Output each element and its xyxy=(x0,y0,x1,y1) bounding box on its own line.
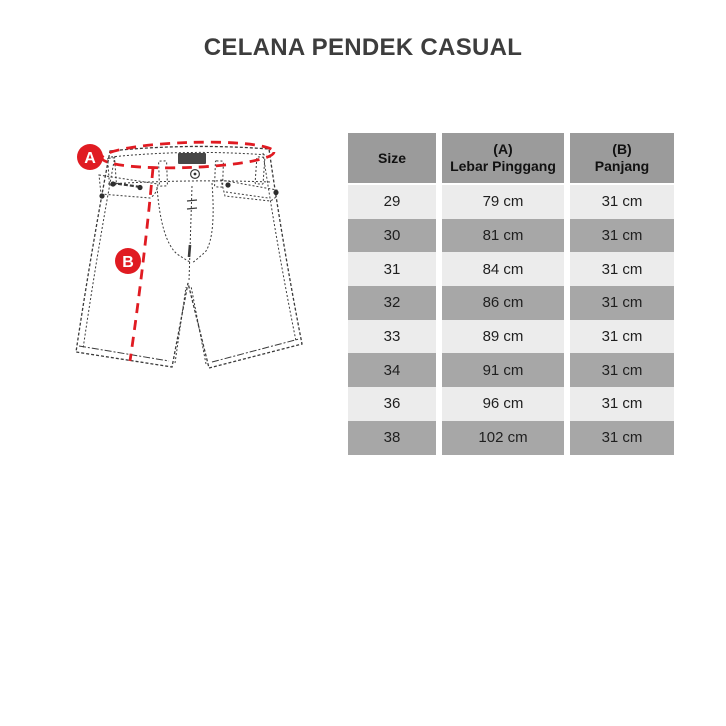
cell-waist: 102 cm xyxy=(442,421,564,455)
col-header-size-label: Size xyxy=(378,150,406,167)
cell-length: 31 cm xyxy=(570,286,674,320)
waist-button-pin xyxy=(194,173,197,176)
left-pocket-bag-line xyxy=(157,187,190,262)
table-row: 38 102 cm 31 cm xyxy=(348,421,674,455)
left-seam-rivet xyxy=(99,193,104,198)
marker-a-badge: A xyxy=(77,144,103,170)
shorts-sketch xyxy=(76,146,302,368)
cell-length: 31 cm xyxy=(570,421,674,455)
cell-waist: 86 cm xyxy=(442,286,564,320)
col-header-size: Size xyxy=(348,133,436,183)
cell-length: 31 cm xyxy=(570,219,674,253)
right-pocket-rivet xyxy=(225,182,230,187)
col-header-waist-label: Lebar Pinggang xyxy=(450,158,556,175)
cell-waist: 89 cm xyxy=(442,320,564,354)
left-inseam-stitch xyxy=(175,287,186,363)
right-pocket-rivet xyxy=(273,190,278,195)
table-row: 36 96 cm 31 cm xyxy=(348,387,674,421)
cell-waist: 79 cm xyxy=(442,185,564,219)
cell-size: 32 xyxy=(348,286,436,320)
left-hem-stitch xyxy=(79,346,169,361)
marker-a-label: A xyxy=(84,150,96,167)
cell-length: 31 cm xyxy=(570,185,674,219)
brand-patch xyxy=(178,153,206,164)
belt-loop xyxy=(159,161,168,186)
left-pocket-rivet xyxy=(110,181,115,186)
cell-size: 34 xyxy=(348,353,436,387)
col-header-length-code: (B) xyxy=(612,141,631,158)
col-header-waist-code: (A) xyxy=(493,141,512,158)
cell-size: 30 xyxy=(348,219,436,253)
table-row: 34 91 cm 31 cm xyxy=(348,353,674,387)
size-table-header: Size (A) Lebar Pinggang (B) Panjang xyxy=(348,133,674,183)
cell-waist: 84 cm xyxy=(442,252,564,286)
right-hem-stitch xyxy=(212,339,299,362)
cell-size: 29 xyxy=(348,185,436,219)
cell-size: 38 xyxy=(348,421,436,455)
cell-size: 33 xyxy=(348,320,436,354)
col-header-waist: (A) Lebar Pinggang xyxy=(442,133,564,183)
table-row: 32 86 cm 31 cm xyxy=(348,286,674,320)
cell-length: 31 cm xyxy=(570,252,674,286)
marker-b-label: B xyxy=(122,254,134,271)
cell-waist: 96 cm xyxy=(442,387,564,421)
cell-size: 36 xyxy=(348,387,436,421)
cell-length: 31 cm xyxy=(570,387,674,421)
cell-waist: 81 cm xyxy=(442,219,564,253)
col-header-length: (B) Panjang xyxy=(570,133,674,183)
right-side-seam xyxy=(263,153,296,341)
left-pocket-rivet xyxy=(137,185,142,190)
cell-waist: 91 cm xyxy=(442,353,564,387)
size-chart-page: CELANA PENDEK CASUAL xyxy=(0,0,726,726)
col-header-length-label: Panjang xyxy=(595,158,649,175)
cell-length: 31 cm xyxy=(570,353,674,387)
waistband-bottom-seam xyxy=(108,181,270,184)
fly-j-stitch xyxy=(192,183,213,263)
shorts-outline xyxy=(76,146,302,368)
marker-b-badge: B xyxy=(115,248,141,274)
fly-bar-tack xyxy=(189,245,190,257)
table-row: 33 89 cm 31 cm xyxy=(348,320,674,354)
size-table: Size (A) Lebar Pinggang (B) Panjang 29 7… xyxy=(348,133,674,455)
table-row: 31 84 cm 31 cm xyxy=(348,252,674,286)
fly-tick-marks xyxy=(187,200,197,209)
table-row: 30 81 cm 31 cm xyxy=(348,219,674,253)
cell-size: 31 xyxy=(348,252,436,286)
table-row: 29 79 cm 31 cm xyxy=(348,185,674,219)
left-side-seam xyxy=(83,156,115,349)
cell-length: 31 cm xyxy=(570,320,674,354)
belt-loop xyxy=(108,158,117,185)
size-table-body: 29 79 cm 31 cm 30 81 cm 31 cm 31 84 cm 3… xyxy=(348,185,674,455)
